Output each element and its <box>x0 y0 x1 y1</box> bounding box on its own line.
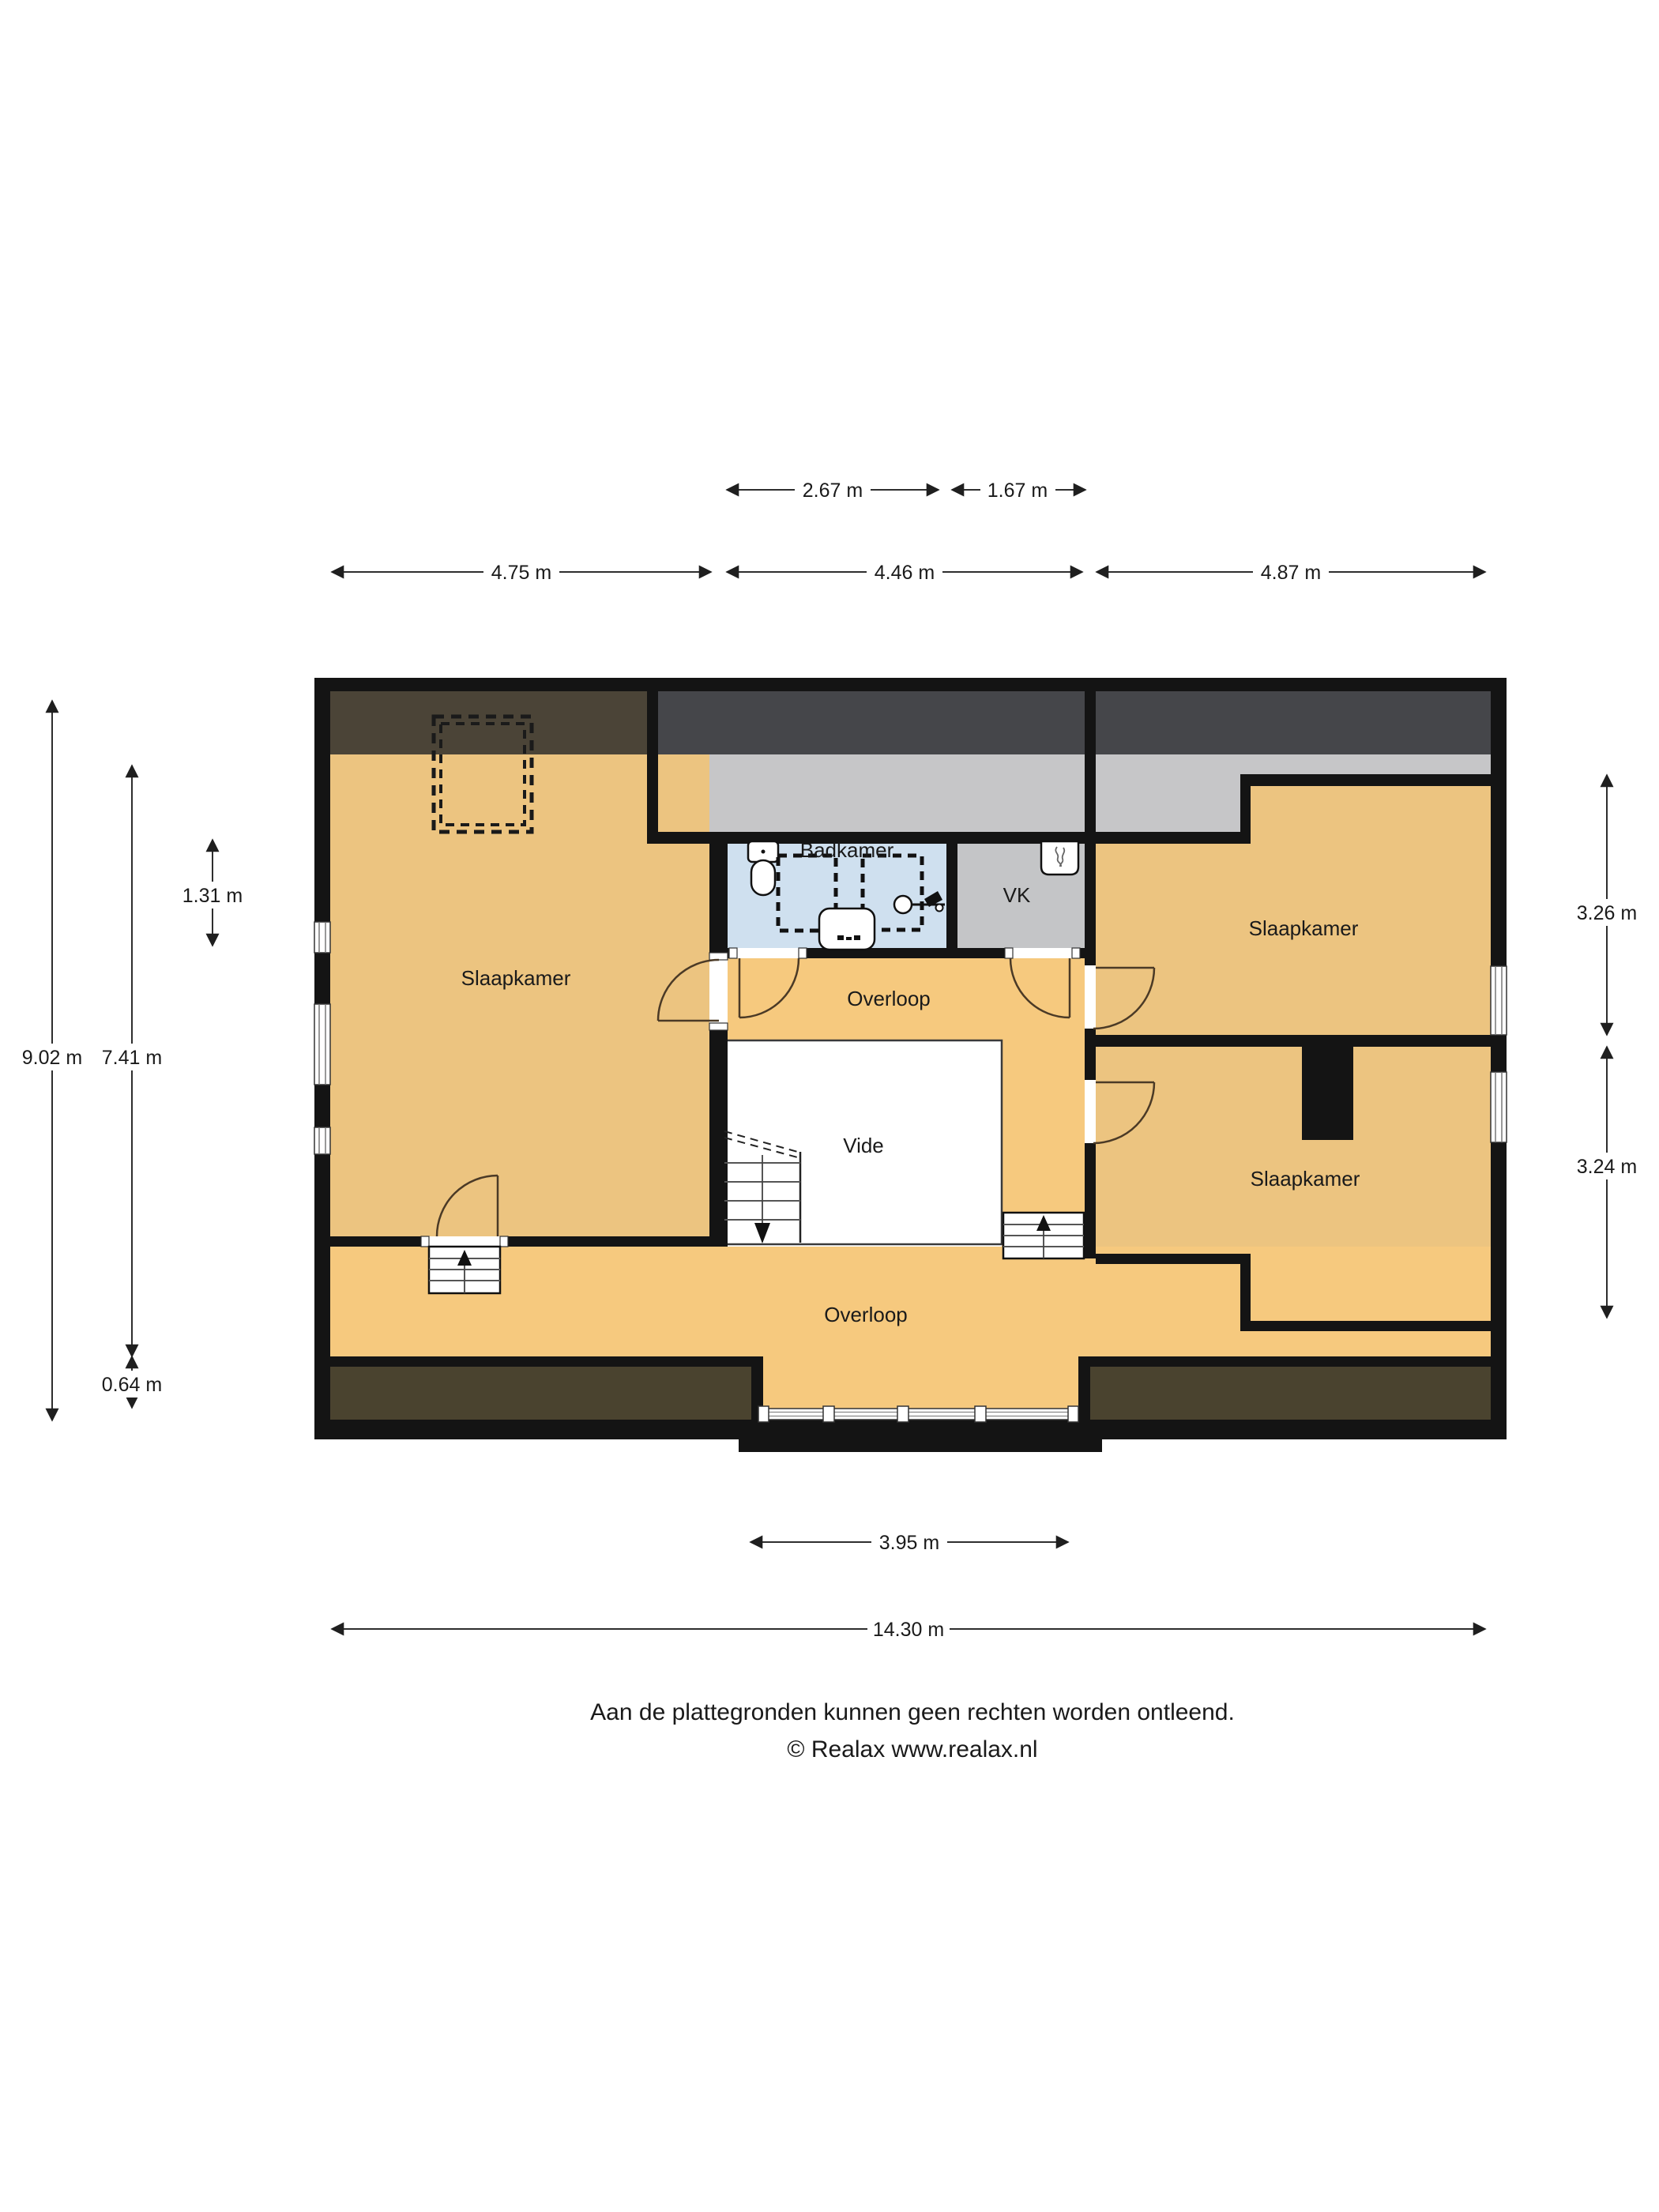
dim-top-left: 4.75 m <box>491 562 551 584</box>
dim-top-middle: 4.46 m <box>875 562 935 584</box>
floor-plan-page: 2.67 m 1.67 m 4.75 m 4.46 m 4.87 m 9.02 … <box>0 0 1659 2212</box>
stairs-up-icon <box>1003 1213 1084 1258</box>
label-slaapkamer-top-right: Slaapkamer <box>1249 916 1359 940</box>
knee-wall-band-left <box>330 1367 751 1420</box>
dim-badkamer-width: 2.67 m <box>803 480 863 502</box>
dim-top-right: 4.87 m <box>1261 562 1321 584</box>
wall-outer-bottom-bay <box>739 1434 1102 1452</box>
dim-knee-wall: 0.64 m <box>102 1374 162 1396</box>
window-icon <box>314 1004 330 1085</box>
toilet-icon <box>748 841 778 895</box>
dim-total-width: 14.30 m <box>873 1619 944 1641</box>
label-vk: VK <box>1003 883 1031 907</box>
label-badkamer: Badkamer <box>800 838 894 862</box>
stairs-up-icon <box>429 1247 500 1293</box>
dim-left-interior: 7.41 m <box>102 1047 162 1069</box>
attic-band-dark-mid <box>658 691 1085 754</box>
chimney-block <box>1302 1047 1353 1140</box>
disclaimer-text: Aan de plattegronden kunnen geen rechten… <box>590 1699 1235 1725</box>
label-overloop-bottom: Overloop <box>824 1303 908 1326</box>
dim-bay-width: 3.95 m <box>879 1532 939 1554</box>
wall-outer-right <box>1491 678 1507 1439</box>
attic-band-gray-right-b <box>1251 754 1491 774</box>
label-overloop-top: Overloop <box>847 987 931 1010</box>
ventilation-unit-icon <box>1041 841 1078 875</box>
dim-right-top-bedroom: 3.26 m <box>1577 902 1637 924</box>
label-slaapkamer-left: Slaapkamer <box>461 966 571 990</box>
floor-plan-svg: 2.67 m 1.67 m 4.75 m 4.46 m 4.87 m 9.02 … <box>0 0 1659 2212</box>
washbasin-icon <box>819 908 875 950</box>
knee-wall-band-right <box>1090 1367 1491 1420</box>
dim-left-total: 9.02 m <box>22 1047 82 1069</box>
window-icon <box>1491 966 1507 1035</box>
copyright-text: © Realax www.realax.nl <box>787 1736 1037 1762</box>
attic-band-gray-right-a <box>1096 754 1251 832</box>
attic-band-gray-mid <box>658 754 1085 832</box>
label-slaapkamer-bottom-right: Slaapkamer <box>1251 1167 1360 1191</box>
window-icon <box>314 1127 330 1154</box>
room-overloop-bottom <box>330 1247 1491 1356</box>
footer: Aan de plattegronden kunnen geen rechten… <box>590 1699 1235 1762</box>
dim-vk-width: 1.67 m <box>987 480 1048 502</box>
attic-band-dark-right <box>1096 691 1491 754</box>
wall-outer-top <box>314 678 1507 691</box>
overloop-bay <box>763 1356 1078 1409</box>
window-icon <box>314 922 330 953</box>
dim-badkamer-height: 1.31 m <box>182 885 243 907</box>
bay-window-icon <box>758 1406 1078 1422</box>
dim-right-bottom-bedroom: 3.24 m <box>1577 1156 1637 1178</box>
label-vide: Vide <box>843 1134 884 1157</box>
window-icon <box>1491 1072 1507 1142</box>
